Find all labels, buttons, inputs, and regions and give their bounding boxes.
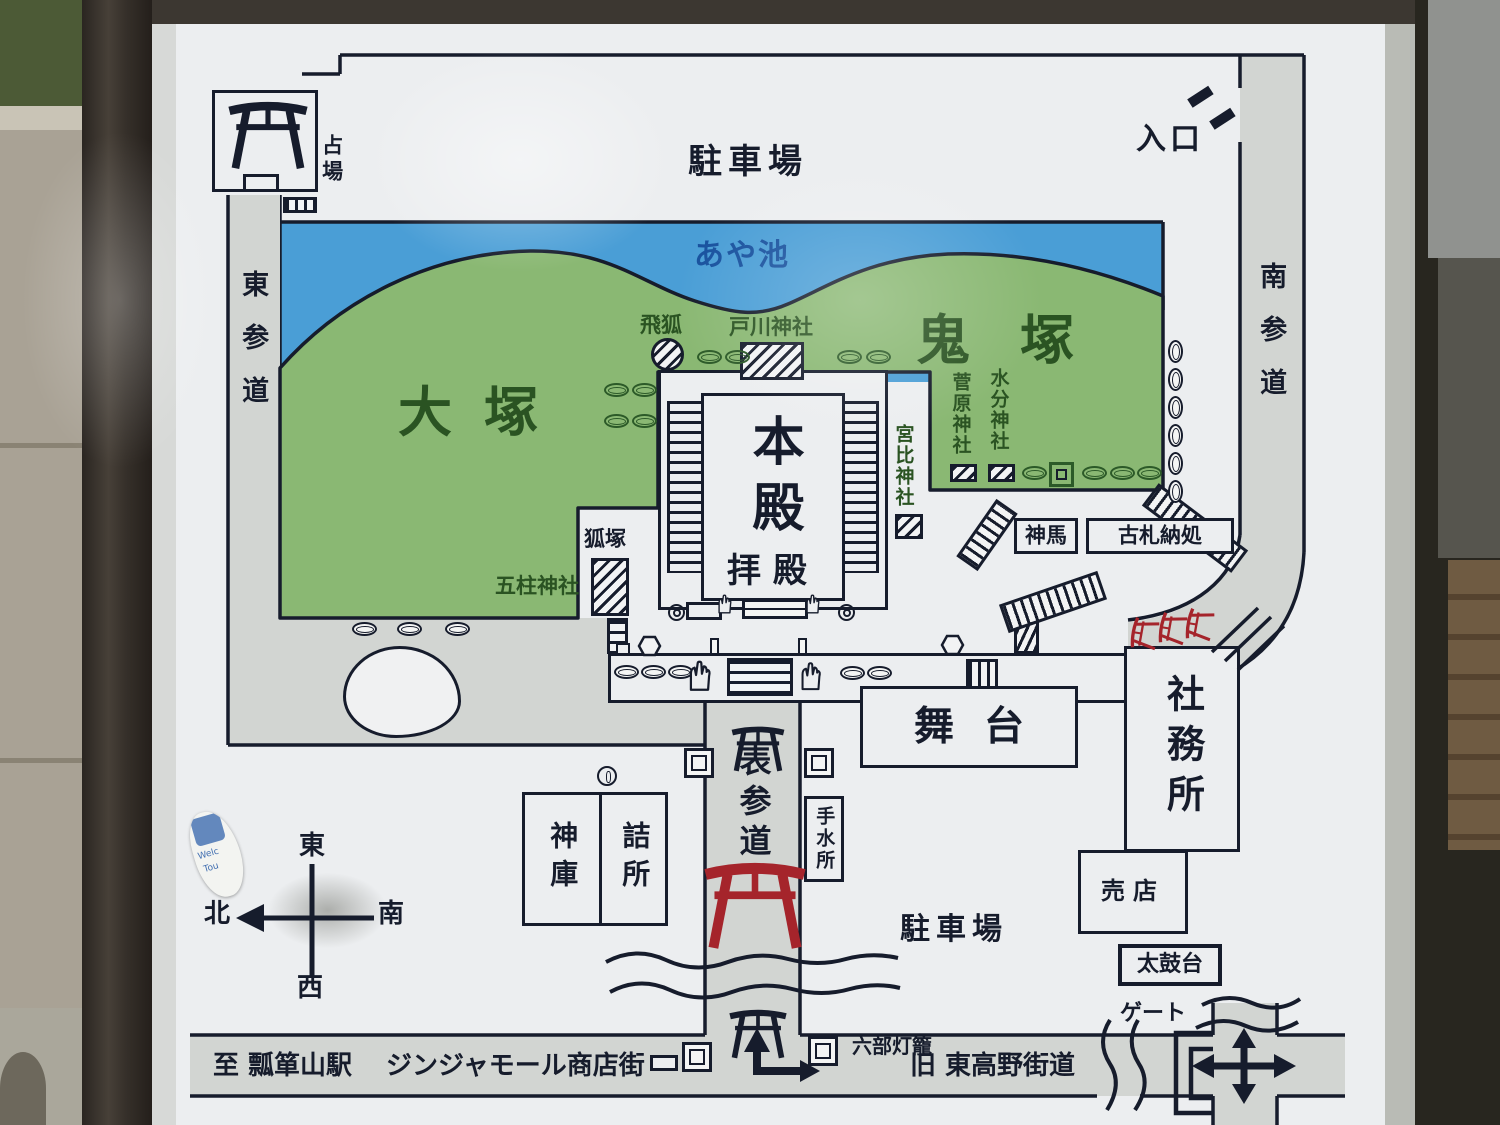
stone-icon [641,665,666,679]
jinja-mall-label: ジンジャモール商店街 [386,1052,645,1080]
small-structure [616,643,630,655]
stone-icon [867,666,892,680]
main-hall-complex: 本殿 拝殿 [658,370,888,610]
stairs-icon [283,197,317,213]
background-window [1438,258,1500,558]
togawa-shrine-building [740,342,804,380]
sign-edge-right [1385,24,1415,1125]
wall-top-edge [0,104,82,130]
sugawara-shrine-building [950,464,977,482]
sticker-art [190,812,227,847]
higashi-sando-label: 東参道 [238,270,267,429]
tobigitsune-mound [651,338,684,371]
shrine-office-box: 社務所 [1124,646,1240,852]
mikumari-label: 水分神社 [988,368,1009,452]
stone-icon [632,383,657,397]
kosatsu-label: 古札納処 [1118,525,1202,548]
wall-seam [0,758,82,763]
offering-box [742,599,808,619]
minami-sando-label: 南参道 [1256,262,1285,421]
circle-marker-icon [668,604,685,621]
stone-icon [1022,466,1047,480]
tsumesho-label: 詰所 [619,821,649,897]
stone-icon [837,350,862,364]
stone-icon [668,665,693,679]
miyabi-label: 宮比神社 [893,424,914,508]
stage-box: 舞台 [860,686,1078,768]
stone-icon [614,665,639,679]
lantern-icon [808,1036,838,1066]
stone-icon [604,383,629,397]
small-structure [650,1055,678,1071]
circle-marker-icon [838,604,855,621]
uranaiba-label: 占場 [320,134,343,186]
bush [0,0,82,106]
aya-pond-label: あや池 [694,240,790,272]
lantern-icon [684,748,714,778]
stone-icon [1168,340,1183,363]
post-icon [710,638,719,655]
chouzusho-label: 手水所 [814,806,835,872]
shinko-label: 神庫 [547,821,577,897]
stone-icon [632,414,657,428]
corridor-east [839,401,879,573]
kitsunezuka-label: 狐塚 [584,528,626,551]
taikodai-label: 太鼓台 [1137,953,1203,977]
lantern-icon [804,748,834,778]
taikodai-box: 太鼓台 [1118,944,1222,986]
stone-icon [397,622,422,636]
miyabi-shrine-building [895,514,923,539]
parking-bottom-label: 駐車場 [900,914,1008,946]
stone-icon [1082,466,1107,480]
bicycle-shadow [0,1052,46,1125]
stone-icon [352,622,377,636]
stairs-icon [727,658,793,696]
stone-icon [1137,466,1162,480]
old-road-label: 旧 東高野街道 [910,1052,1075,1080]
omote-sando-label: 表参道 [736,744,771,864]
gate-label: ゲート [1120,1002,1186,1026]
torii-pedestal [243,174,279,192]
otsuka-label: 大塚 [398,384,570,442]
parking-top-label: 駐車場 [688,144,808,181]
small-structure [686,602,722,620]
wall-seam [0,443,82,448]
shop-label: 売店 [1101,879,1165,905]
stone-icon [604,414,629,428]
haiden-label: 拝殿 [727,553,819,590]
gochuu-shrine-building [591,558,629,616]
sign-edge-left [152,24,176,1125]
chouzusho-box: 手水所 [804,796,844,882]
wood-logs [1448,560,1500,850]
sign-frame-top [152,0,1415,24]
gochuu-label: 五柱神社 [495,575,579,598]
stone-icon [866,350,891,364]
entrance-label: 入口 [1136,124,1204,156]
stone-icon [1110,466,1135,480]
honden-label: 本殿 [745,414,801,546]
stone-icon [1168,368,1183,391]
lantern-icon [1049,462,1074,487]
storehouse-station-box: 神庫 詰所 [522,792,668,926]
mikumari-shrine-building [988,464,1015,482]
background-wall [0,0,82,1125]
compass-east-label: 東 [299,832,325,860]
box-divider [599,795,602,923]
sticker-text: Tou [203,862,220,876]
shinme-label: 神馬 [1025,525,1067,548]
stone-icon [840,666,865,680]
background-building [1428,0,1500,258]
shrine-office-label: 社務所 [1161,674,1202,824]
kosatsu-box: 古札納処 [1086,518,1234,554]
compass-west-label: 西 [297,974,323,1002]
post-icon [798,638,807,655]
stone-icon [1168,424,1183,447]
stone-icon [1168,452,1183,475]
compass-north-label: 北 [204,900,230,928]
compass-south-label: 南 [378,900,404,928]
stage-label: 舞台 [884,705,1054,748]
stone-icon [1168,480,1183,503]
to-station-label: 至 瓢箪山駅 [213,1052,352,1080]
lantern-icon [682,1042,712,1072]
sign-frame-left [82,0,152,1125]
stone-icon [697,350,722,364]
honden-haiden-box: 本殿 拝殿 [701,393,845,601]
stone-icon [445,622,470,636]
stone-icon [1168,396,1183,419]
togawa-label: 戸川神社 [729,316,813,339]
lantern-base-icon [597,766,617,786]
shinme-box: 神馬 [1014,518,1078,554]
shop-box: 売店 [1078,850,1188,934]
shrine-map-photo: 本殿 拝殿 神馬 古札納処 舞台 社務所 売店 太鼓台 神庫 詰所 手水所 [0,0,1500,1125]
tobigitsune-label: 飛狐 [640,314,682,337]
stone-icon [725,350,750,364]
sugawara-label: 菅原神社 [950,372,971,456]
onizuka-label: 鬼塚 [916,312,1124,370]
